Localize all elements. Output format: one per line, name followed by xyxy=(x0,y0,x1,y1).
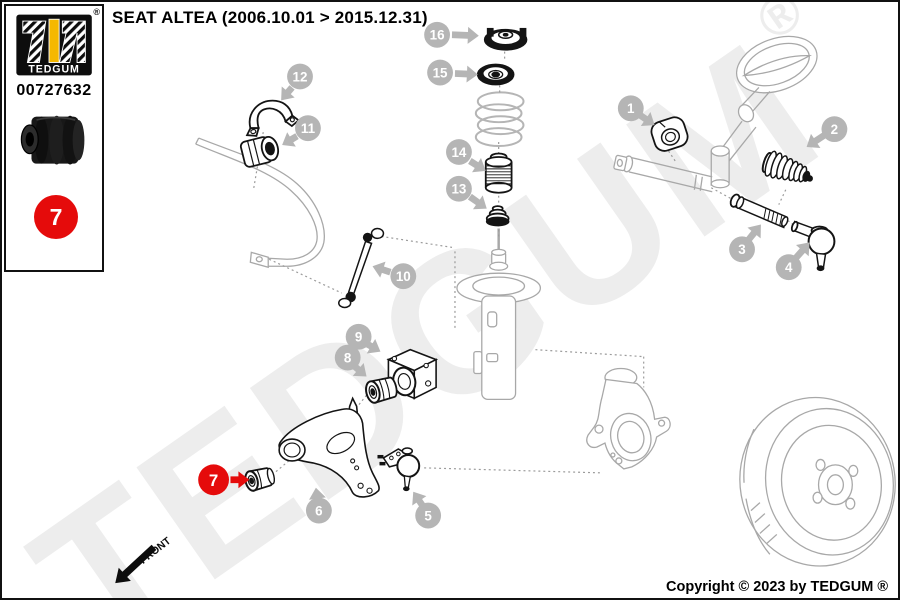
callout-16: 16 xyxy=(424,22,479,48)
callout-number: 1 xyxy=(627,101,635,116)
knuckle-art xyxy=(587,369,670,469)
highlight-badge: 7 xyxy=(34,195,78,239)
registered-mark: ® xyxy=(93,7,100,17)
catalog-page: TEDGUM® xyxy=(0,0,900,600)
logo-wordmark: TEDGUM xyxy=(28,64,79,76)
callout-arrow-icon xyxy=(468,158,486,172)
tedgum-logo: TEDGUM xyxy=(9,9,101,81)
strut-bearing-art xyxy=(478,65,514,85)
callout-number: 13 xyxy=(451,182,466,197)
copyright: Copyright © 2023 by TEDGUM ® xyxy=(666,579,888,595)
callout-number: 12 xyxy=(293,69,308,84)
coil-spring-art xyxy=(476,92,524,146)
callout-number: 5 xyxy=(424,508,432,523)
product-photo xyxy=(13,103,97,179)
callout-number: 14 xyxy=(451,145,466,160)
logo-yellow-bar xyxy=(49,19,59,62)
callout-number: 10 xyxy=(396,269,411,284)
stabilizer-bushing-art xyxy=(240,134,281,168)
callout-number: 15 xyxy=(433,65,448,80)
callout-arrow-icon xyxy=(455,66,478,83)
callout-arrow-icon xyxy=(282,132,299,146)
callout-arrow-icon xyxy=(452,27,479,44)
callout-4: 4 xyxy=(776,242,810,280)
parts-panel: TEDGUM ® 00727632 7 xyxy=(4,4,104,272)
callout-12: 12 xyxy=(281,64,313,101)
callout-number: 11 xyxy=(301,121,316,136)
callout-number: 9 xyxy=(355,330,362,345)
wheel-art xyxy=(727,385,898,578)
callout-15: 15 xyxy=(427,60,478,86)
callout-number: 16 xyxy=(430,28,445,43)
callout-arrow-icon xyxy=(281,85,295,100)
callout-number: 6 xyxy=(315,503,322,518)
part-number: 00727632 xyxy=(6,82,102,100)
exploded-diagram: TEDGUM® xyxy=(2,2,898,598)
callout-5: 5 xyxy=(412,492,441,529)
callout-number: 7 xyxy=(209,471,218,490)
callout-number: 3 xyxy=(738,242,745,257)
stabilizer-bracket-art xyxy=(240,95,300,138)
page-title: SEAT ALTEA (2006.10.01 > 2015.12.31) xyxy=(112,8,428,28)
callout-number: 8 xyxy=(344,350,352,365)
strut-mount-art xyxy=(485,29,527,50)
callout-number: 4 xyxy=(785,260,793,275)
callout-number: 2 xyxy=(831,122,838,137)
callout-14: 14 xyxy=(446,139,486,172)
